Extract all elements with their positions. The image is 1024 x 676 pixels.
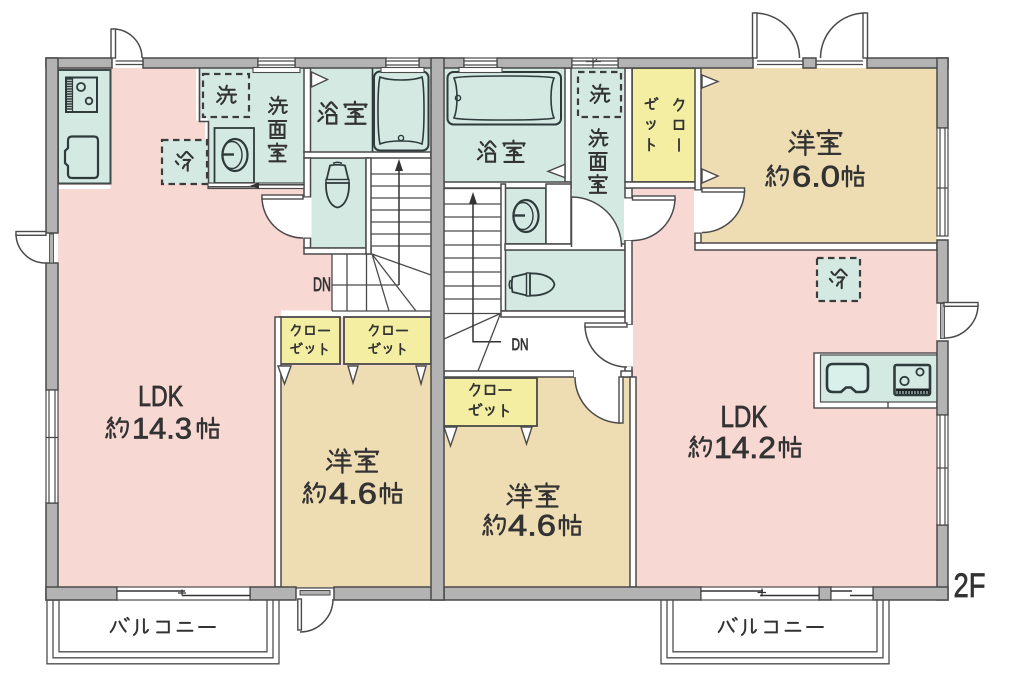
svg-text:DN: DN [313,275,331,296]
svg-text:4.6: 4.6 [508,510,556,543]
svg-text:2F: 2F [954,567,986,605]
svg-text:LDK: LDK [138,381,184,413]
svg-text:14.3: 14.3 [132,413,192,446]
svg-text:LDK: LDK [721,399,768,434]
svg-text:4.6: 4.6 [329,478,377,511]
svg-text:14.2: 14.2 [714,430,776,465]
svg-text:DN: DN [512,335,529,354]
svg-text:6.0: 6.0 [792,161,840,194]
